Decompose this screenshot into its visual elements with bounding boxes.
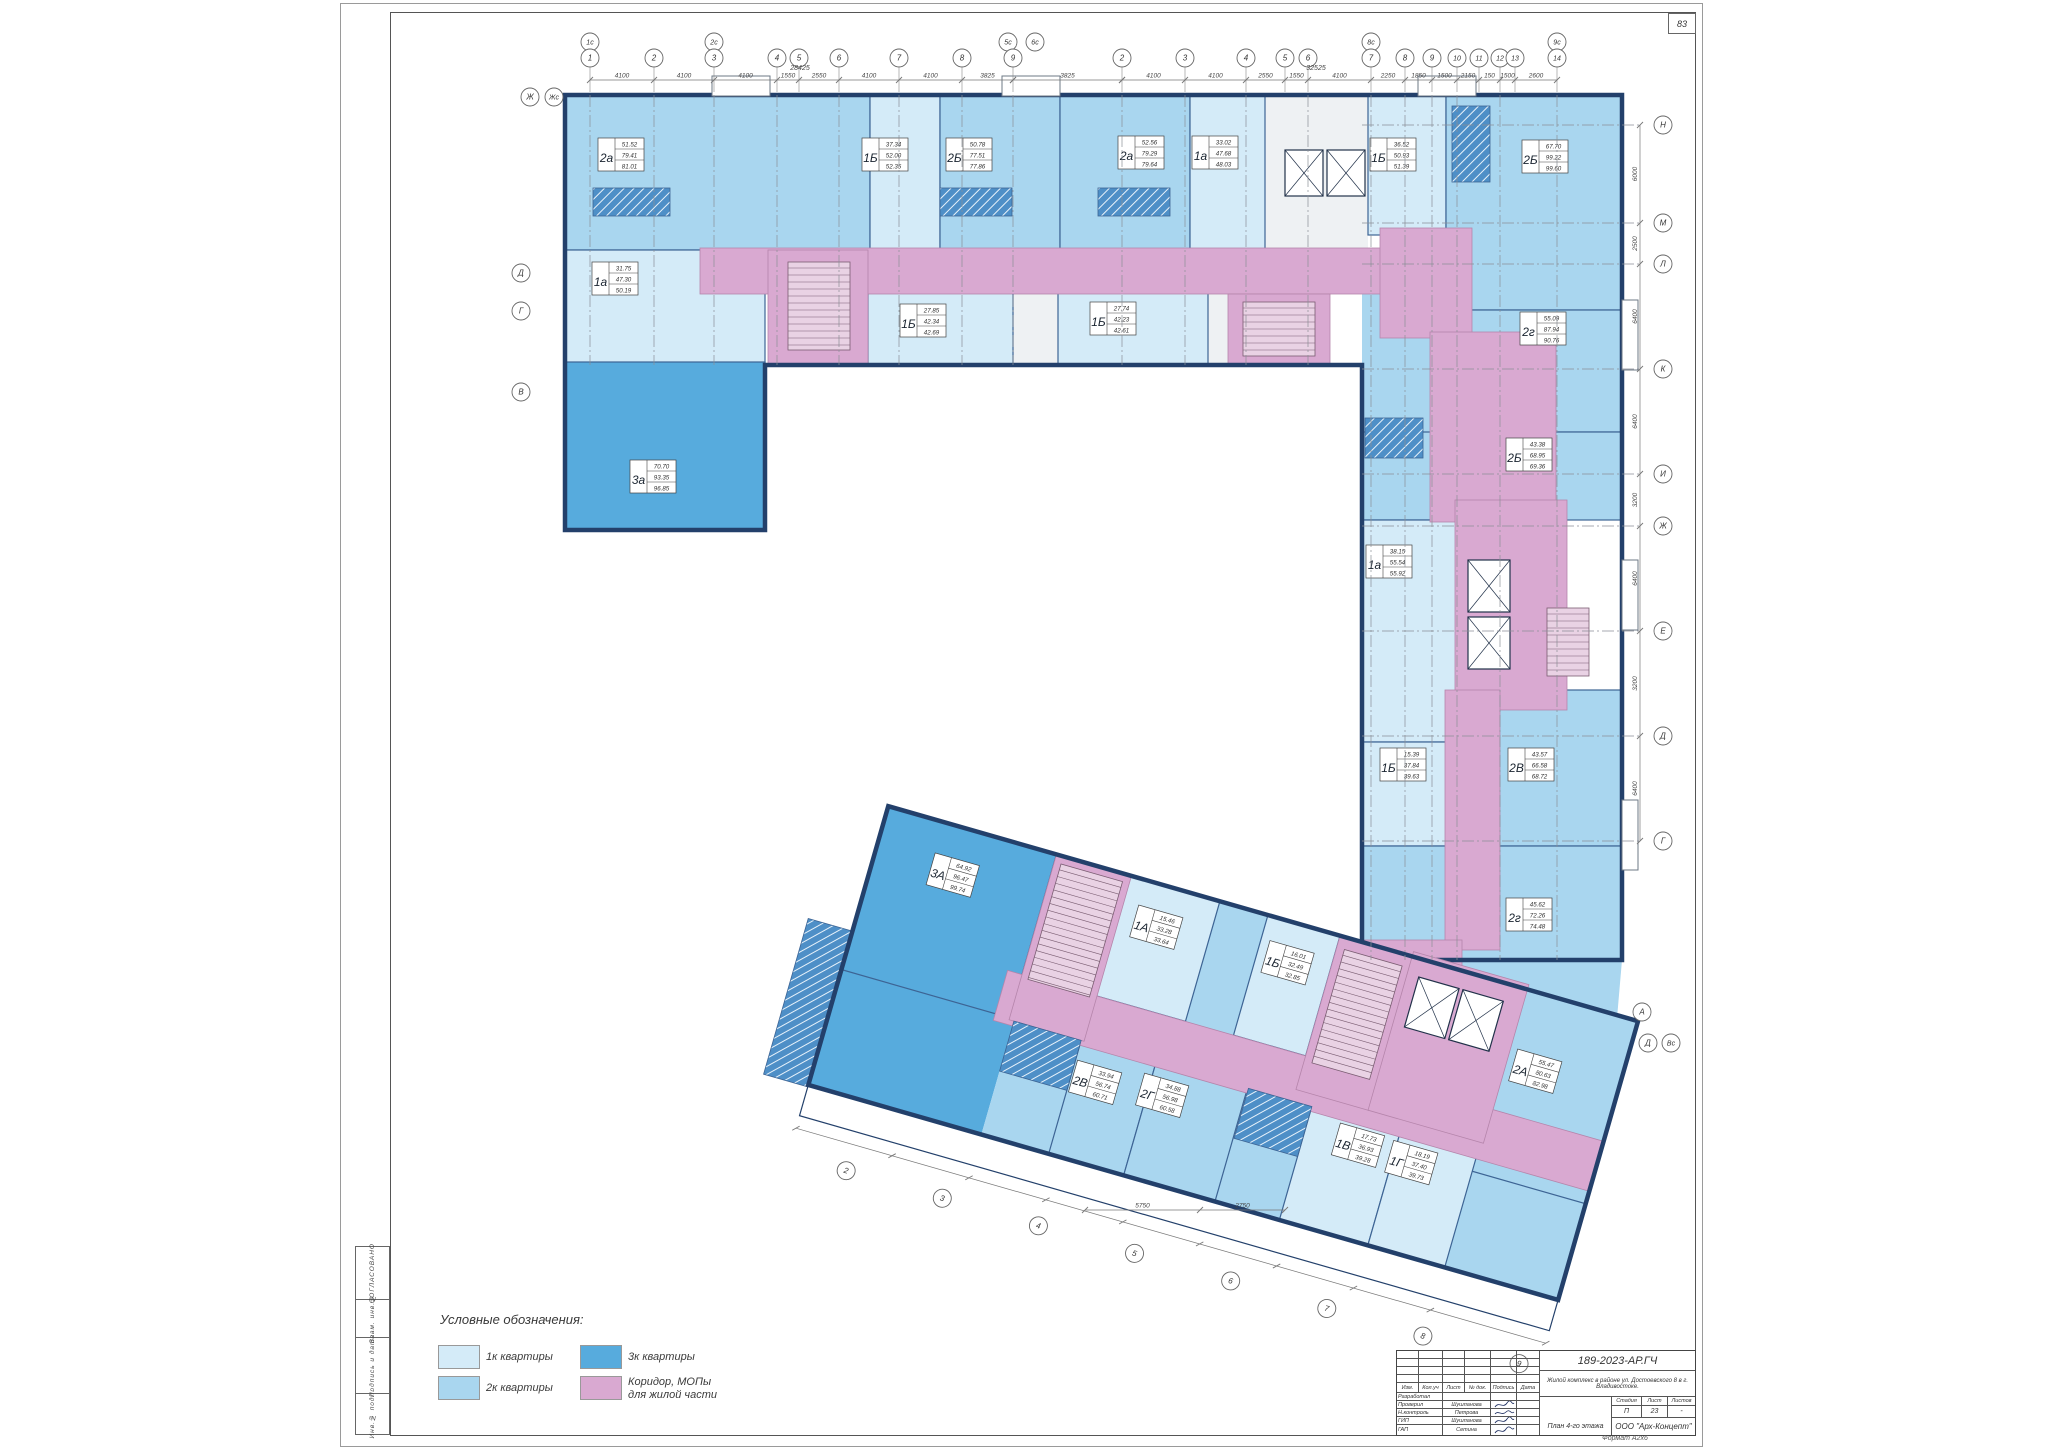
svg-text:47.68: 47.68 bbox=[1216, 150, 1232, 157]
grid-bubble-9с: 9с bbox=[1548, 33, 1566, 51]
tb-col-izm: Изм. bbox=[1397, 1383, 1419, 1393]
dim-value: 6000 bbox=[1632, 166, 1639, 181]
tb-col-koluch: Кол.уч bbox=[1419, 1383, 1443, 1393]
svg-text:15.39: 15.39 bbox=[1404, 751, 1420, 758]
grid-bubble-11: 11 bbox=[1470, 49, 1488, 67]
tb-company: ООО "Арх-Концепт" bbox=[1612, 1418, 1695, 1435]
grid-bubble-2: 2 bbox=[645, 49, 663, 67]
svg-text:Д: Д bbox=[517, 269, 524, 278]
dim-tick bbox=[792, 1124, 799, 1131]
grid-bubble-Ж: Ж bbox=[521, 88, 539, 106]
apartment-label-2Б: 2Б50.7877.5177.86 bbox=[946, 138, 992, 171]
grid-bubble-Д: Д bbox=[512, 264, 530, 282]
grid-bubble-М: М bbox=[1654, 214, 1672, 232]
grid-bubble-Г: Г bbox=[1654, 832, 1672, 850]
grid-bubble-2с: 2с bbox=[705, 33, 723, 51]
dim-value: 2600 bbox=[1528, 73, 1544, 80]
svg-text:1а: 1а bbox=[1194, 149, 1208, 163]
svg-text:68.72: 68.72 bbox=[1532, 773, 1548, 780]
svg-text:11: 11 bbox=[1475, 56, 1482, 63]
svg-text:72.26: 72.26 bbox=[1530, 912, 1546, 919]
svg-text:В: В bbox=[518, 388, 524, 397]
grid-bubble-2: 2 bbox=[1113, 49, 1131, 67]
grid-bubble-2: 2 bbox=[835, 1160, 857, 1182]
grid-bubble-Ж: Ж bbox=[1654, 517, 1672, 535]
tb-doc-number: 189-2023-АР.ГЧ bbox=[1540, 1351, 1695, 1371]
grid-bubble-Жс: Жс bbox=[545, 88, 563, 106]
svg-text:1: 1 bbox=[588, 54, 592, 63]
svg-text:1а: 1а bbox=[594, 275, 608, 289]
dim-value: 1550 bbox=[781, 73, 796, 80]
corridor bbox=[1445, 690, 1500, 950]
grid-bubble-7: 7 bbox=[1362, 49, 1380, 67]
tb-signature-4 bbox=[1491, 1425, 1517, 1435]
tb-sheets-label: Листов bbox=[1668, 1397, 1695, 1406]
svg-text:Г: Г bbox=[1661, 837, 1666, 846]
svg-text:Е: Е bbox=[1660, 627, 1666, 636]
svg-text:2: 2 bbox=[1119, 54, 1125, 63]
svg-text:79.64: 79.64 bbox=[1142, 161, 1158, 168]
dim-value: 1550 bbox=[1289, 73, 1304, 80]
dim-tick bbox=[1350, 1284, 1357, 1291]
svg-text:10: 10 bbox=[1453, 56, 1461, 63]
svg-text:2В: 2В bbox=[1508, 761, 1524, 775]
svg-text:55.54: 55.54 bbox=[1390, 559, 1406, 566]
svg-text:Г: Г bbox=[519, 307, 524, 316]
grid-bubble-3: 3 bbox=[705, 49, 723, 67]
grid-bubble-14: 14 bbox=[1548, 49, 1566, 67]
balcony bbox=[1622, 560, 1638, 630]
legend-label-1k: 1к квартиры bbox=[486, 1351, 553, 1364]
legend-label-2k: 2к квартиры bbox=[486, 1382, 553, 1395]
svg-text:12: 12 bbox=[1496, 56, 1504, 63]
floor-plan: 2а51.5279.4181.011Б37.3452.0052.352Б50.7… bbox=[0, 0, 2048, 1448]
tb-project: Жилой комплекс в районе ул. Достоевского… bbox=[1540, 1371, 1695, 1397]
svg-text:1Б: 1Б bbox=[863, 151, 878, 165]
grid-bubble-1с: 1с bbox=[581, 33, 599, 51]
svg-text:55.92: 55.92 bbox=[1390, 570, 1406, 577]
svg-text:81.01: 81.01 bbox=[622, 163, 637, 170]
apartment-2а bbox=[565, 95, 870, 250]
grid-bubble-7: 7 bbox=[1316, 1297, 1338, 1319]
hatched-area bbox=[940, 188, 1012, 216]
svg-text:27.74: 27.74 bbox=[1113, 305, 1130, 312]
svg-text:38.15: 38.15 bbox=[1390, 548, 1406, 555]
svg-text:52.35: 52.35 bbox=[886, 163, 902, 170]
svg-text:77.51: 77.51 bbox=[970, 152, 985, 159]
hatched-area bbox=[593, 188, 670, 216]
svg-text:6: 6 bbox=[1306, 54, 1311, 63]
area-fill bbox=[1013, 292, 1058, 364]
svg-text:90.76: 90.76 bbox=[1544, 337, 1560, 344]
svg-text:6: 6 bbox=[837, 54, 842, 63]
svg-text:1а: 1а bbox=[1368, 558, 1382, 572]
svg-text:50.93: 50.93 bbox=[1394, 152, 1410, 159]
apartment-2а bbox=[1060, 95, 1190, 250]
svg-text:7: 7 bbox=[897, 54, 902, 63]
svg-text:69.36: 69.36 bbox=[1530, 463, 1546, 470]
tb-name-4: Сетина bbox=[1443, 1425, 1491, 1435]
dim-value: 4100 bbox=[615, 73, 630, 80]
dim-tick bbox=[1427, 1306, 1434, 1313]
dim-value: 2750 bbox=[1234, 1203, 1250, 1210]
svg-text:2Б: 2Б bbox=[1506, 451, 1522, 465]
tb-signature-2 bbox=[1491, 1409, 1517, 1417]
grid-bubble-Е: Е bbox=[1654, 622, 1672, 640]
grid-bubble-3: 3 bbox=[1176, 49, 1194, 67]
dim-value: 4100 bbox=[1146, 73, 1161, 80]
svg-text:7: 7 bbox=[1369, 54, 1374, 63]
svg-text:36.52: 36.52 bbox=[1394, 141, 1410, 148]
svg-text:9: 9 bbox=[1430, 54, 1435, 63]
grid-bubble-8: 8 bbox=[1412, 1325, 1434, 1347]
apartment-2Б bbox=[940, 95, 1060, 250]
svg-text:2Б: 2Б bbox=[946, 151, 962, 165]
dim-tick bbox=[1196, 1240, 1203, 1247]
dim-value: 5750 bbox=[1135, 1203, 1150, 1210]
corridor bbox=[1380, 228, 1472, 338]
svg-text:93.35: 93.35 bbox=[654, 474, 670, 481]
tb-name-0 bbox=[1443, 1393, 1491, 1401]
svg-text:5: 5 bbox=[1283, 54, 1288, 63]
svg-text:1Б: 1Б bbox=[1091, 315, 1106, 329]
dim-tick bbox=[965, 1174, 972, 1181]
title-block: Изм. Кол.уч Лист № док. Подпись Дата Раз… bbox=[1396, 1350, 1696, 1436]
svg-text:2Б: 2Б bbox=[1522, 153, 1538, 167]
svg-text:66.58: 66.58 bbox=[1532, 762, 1548, 769]
svg-text:2а: 2а bbox=[599, 151, 614, 165]
grid-bubble-А: А bbox=[1633, 1003, 1651, 1021]
dim-value: 3825 bbox=[980, 73, 995, 80]
svg-text:9: 9 bbox=[1011, 54, 1016, 63]
tb-col-podpis: Подпись bbox=[1491, 1383, 1517, 1393]
tb-role-3: ГИП bbox=[1397, 1417, 1443, 1425]
tb-name-1: Шушпанова bbox=[1443, 1401, 1491, 1409]
tb-col-list: Лист bbox=[1443, 1383, 1465, 1393]
apartment-label-2а: 2а51.5279.4181.01 bbox=[598, 138, 644, 171]
format-note: Формат А2х6 bbox=[1560, 1435, 1690, 1442]
svg-text:Вс: Вс bbox=[1667, 1041, 1676, 1048]
grid-bubble-8: 8 bbox=[953, 49, 971, 67]
svg-text:74.48: 74.48 bbox=[1530, 923, 1546, 930]
svg-text:6с: 6с bbox=[1031, 40, 1039, 47]
apartment-label-2В: 2В43.5766.5868.72 bbox=[1508, 748, 1554, 781]
svg-text:31.75: 31.75 bbox=[616, 265, 632, 272]
svg-text:43.38: 43.38 bbox=[1530, 441, 1546, 448]
svg-text:55.09: 55.09 bbox=[1544, 315, 1560, 322]
grid-bubble-6: 6 bbox=[1220, 1270, 1242, 1292]
tb-drawing-title: План 4-го этажа bbox=[1540, 1397, 1612, 1435]
grid-bubble-5с: 5с bbox=[999, 33, 1017, 51]
svg-text:50.78: 50.78 bbox=[970, 141, 986, 148]
hatched-area bbox=[1365, 418, 1423, 458]
grid-bubble-5: 5 bbox=[1276, 49, 1294, 67]
tb-stage-label: Стадия bbox=[1612, 1397, 1642, 1406]
svg-text:37.84: 37.84 bbox=[1404, 762, 1420, 769]
dim-value: 6400 bbox=[1632, 571, 1639, 586]
svg-text:27.85: 27.85 bbox=[923, 307, 940, 314]
dim-value: 4100 bbox=[923, 73, 938, 80]
dim-value: 2150 bbox=[1460, 73, 1476, 80]
grid-bubble-5: 5 bbox=[1123, 1242, 1145, 1264]
svg-text:52.56: 52.56 bbox=[1142, 139, 1158, 146]
dim-value: 150 bbox=[1484, 73, 1495, 80]
svg-text:А: А bbox=[1638, 1008, 1644, 1017]
apartment-1а bbox=[1190, 95, 1265, 250]
legend-swatch-1k bbox=[438, 1345, 480, 1369]
legend-title: Условные обозначения: bbox=[440, 1312, 584, 1327]
svg-text:1с: 1с bbox=[586, 40, 594, 47]
svg-text:14: 14 bbox=[1553, 56, 1561, 63]
svg-text:Ж: Ж bbox=[1658, 522, 1667, 531]
grid-bubble-1: 1 bbox=[581, 49, 599, 67]
svg-text:1Б: 1Б bbox=[1371, 151, 1386, 165]
grid-bubble-Л: Л bbox=[1654, 255, 1672, 273]
svg-text:8: 8 bbox=[960, 54, 965, 63]
apartment-label-1Б: 1Б15.3937.8439.63 bbox=[1380, 748, 1426, 781]
svg-text:4: 4 bbox=[775, 54, 780, 63]
grid-bubble-4: 4 bbox=[768, 49, 786, 67]
svg-text:8: 8 bbox=[1403, 54, 1408, 63]
svg-text:43.57: 43.57 bbox=[1532, 751, 1548, 758]
svg-text:2г: 2г bbox=[1507, 911, 1521, 925]
grid-bubble-4: 4 bbox=[1237, 49, 1255, 67]
dim-value: 2500 bbox=[1632, 236, 1639, 252]
apartment-label-2г: 2г45.6272.2674.48 bbox=[1506, 898, 1552, 931]
grid-bubble-Н: Н bbox=[1654, 116, 1672, 134]
dim-value: 4100 bbox=[677, 73, 692, 80]
balcony bbox=[1002, 76, 1060, 96]
tb-role-0: Разработал bbox=[1397, 1393, 1443, 1401]
svg-text:Ж: Ж bbox=[525, 93, 534, 102]
dim-value: 3200 bbox=[1632, 676, 1639, 691]
grid-bubble-6с: 6с bbox=[1026, 33, 1044, 51]
legend-swatch-3k bbox=[580, 1345, 622, 1369]
tb-signature-1 bbox=[1491, 1401, 1517, 1409]
grid-bubble-Д: Д bbox=[1654, 727, 1672, 745]
svg-text:99.60: 99.60 bbox=[1546, 165, 1562, 172]
legend-swatch-2k bbox=[438, 1376, 480, 1400]
svg-text:77.86: 77.86 bbox=[970, 163, 986, 170]
apartment-label-1Б: 1Б27.7442.2342.61 bbox=[1090, 302, 1136, 335]
apartment-label-2г: 2г55.0987.9490.76 bbox=[1520, 312, 1566, 345]
dim-value: 2250 bbox=[1380, 73, 1396, 80]
svg-text:70.70: 70.70 bbox=[654, 463, 670, 470]
svg-text:67.70: 67.70 bbox=[1546, 143, 1562, 150]
grid-bubble-8: 8 bbox=[1396, 49, 1414, 67]
svg-text:99.22: 99.22 bbox=[1546, 154, 1562, 161]
apartment-label-1а: 1а31.7547.3050.19 bbox=[592, 262, 638, 295]
svg-text:Л: Л bbox=[1659, 260, 1666, 269]
dim-value: 6400 bbox=[1632, 781, 1639, 796]
svg-text:48.03: 48.03 bbox=[1216, 161, 1232, 168]
grid-bubble-Д: Д bbox=[1639, 1034, 1657, 1052]
tb-role-4: ГАП bbox=[1397, 1425, 1443, 1435]
dim-value: 1850 bbox=[1411, 73, 1426, 80]
grid-bubble-4: 4 bbox=[1027, 1215, 1049, 1237]
svg-text:79.41: 79.41 bbox=[622, 152, 637, 159]
svg-text:52.00: 52.00 bbox=[886, 152, 902, 159]
apartment-label-1Б: 1Б27.8542.3442.69 bbox=[900, 304, 946, 337]
svg-text:2с: 2с bbox=[709, 40, 718, 47]
dim-value: 2550 bbox=[811, 73, 827, 80]
svg-text:Д: Д bbox=[1644, 1039, 1651, 1048]
tb-sheets-value: - bbox=[1668, 1406, 1695, 1418]
dim-value: 3200 bbox=[1632, 492, 1639, 507]
dim-value: 6400 bbox=[1632, 414, 1639, 429]
svg-text:3: 3 bbox=[712, 54, 717, 63]
apartment-label-3а: 3а70.7093.3596.85 bbox=[630, 460, 676, 493]
grid-bubble-7: 7 bbox=[890, 49, 908, 67]
grid-bubble-10: 10 bbox=[1448, 49, 1466, 67]
tb-name-2: Петрова bbox=[1443, 1409, 1491, 1417]
svg-text:42.34: 42.34 bbox=[924, 318, 940, 325]
apartment-label-2Б: 2Б67.7099.2299.60 bbox=[1522, 140, 1568, 173]
tb-role-1: Проверил bbox=[1397, 1401, 1443, 1409]
svg-text:Н: Н bbox=[1660, 121, 1666, 130]
legend-label-corridor: Коридор, МОПы для жилой части bbox=[628, 1376, 717, 1401]
svg-text:37.34: 37.34 bbox=[886, 141, 902, 148]
dim-value: 3825 bbox=[1060, 73, 1075, 80]
svg-text:М: М bbox=[1660, 219, 1667, 228]
svg-text:2а: 2а bbox=[1119, 149, 1134, 163]
svg-text:42.61: 42.61 bbox=[1114, 327, 1129, 334]
legend-label-3k: 3к квартиры bbox=[628, 1351, 695, 1364]
svg-text:50.19: 50.19 bbox=[616, 287, 632, 294]
grid-bubble-8с: 8с bbox=[1362, 33, 1380, 51]
svg-text:Жс: Жс bbox=[548, 95, 559, 102]
tb-sheet-value: 23 bbox=[1642, 1406, 1668, 1418]
dim-tick bbox=[1273, 1262, 1280, 1269]
apartment-3а bbox=[565, 362, 765, 530]
apartment-label-2а: 2а52.5679.2979.64 bbox=[1118, 136, 1164, 169]
svg-text:39.63: 39.63 bbox=[1404, 773, 1420, 780]
svg-text:5: 5 bbox=[797, 54, 802, 63]
svg-text:13: 13 bbox=[1511, 56, 1519, 63]
svg-text:87.94: 87.94 bbox=[1544, 326, 1560, 333]
dim-value: 1500 bbox=[1500, 73, 1515, 80]
grid-bubble-13: 13 bbox=[1506, 49, 1524, 67]
grid-bubble-9: 9 bbox=[1423, 49, 1441, 67]
dim-value: 4100 bbox=[1208, 73, 1223, 80]
tb-stage-value: П bbox=[1612, 1406, 1642, 1418]
svg-text:8с: 8с bbox=[1367, 40, 1375, 47]
dim-tick bbox=[1542, 1339, 1549, 1346]
hatched-area bbox=[1098, 188, 1170, 216]
grid-bubble-И: И bbox=[1654, 465, 1672, 483]
svg-text:2: 2 bbox=[651, 54, 657, 63]
svg-text:47.30: 47.30 bbox=[616, 276, 632, 283]
tb-sheet-label: Лист bbox=[1642, 1397, 1668, 1406]
grid-bubble-К: К bbox=[1654, 360, 1672, 378]
svg-text:Д: Д bbox=[1659, 732, 1666, 741]
svg-text:68.95: 68.95 bbox=[1530, 452, 1546, 459]
svg-text:51.39: 51.39 bbox=[1394, 163, 1410, 170]
hatched-area bbox=[1452, 106, 1490, 182]
tb-col-data: Дата bbox=[1517, 1383, 1540, 1393]
dim-overall: 32525 bbox=[1306, 65, 1326, 72]
svg-text:42.69: 42.69 bbox=[924, 329, 940, 336]
dim-value: 4100 bbox=[738, 73, 753, 80]
dim-tick bbox=[888, 1152, 895, 1159]
svg-text:1Б: 1Б bbox=[901, 317, 916, 331]
svg-text:45.62: 45.62 bbox=[1530, 901, 1546, 908]
corridor bbox=[1430, 332, 1556, 522]
dim-tick bbox=[1042, 1196, 1049, 1203]
svg-text:33.02: 33.02 bbox=[1216, 139, 1232, 146]
grid-bubble-6: 6 bbox=[830, 49, 848, 67]
dim-value: 1500 bbox=[1437, 73, 1452, 80]
svg-text:9с: 9с bbox=[1553, 40, 1561, 47]
tb-name-3: Шушпанова bbox=[1443, 1417, 1491, 1425]
dim-value: 2550 bbox=[1257, 73, 1273, 80]
svg-text:4: 4 bbox=[1244, 54, 1249, 63]
apartment-label-2Б: 2Б43.3868.9569.36 bbox=[1506, 438, 1552, 471]
grid-bubble-9: 9 bbox=[1004, 49, 1022, 67]
grid-bubble-3: 3 bbox=[931, 1187, 953, 1209]
svg-text:5с: 5с bbox=[1004, 40, 1012, 47]
legend-swatch-corridor bbox=[580, 1376, 622, 1400]
svg-text:96.85: 96.85 bbox=[654, 485, 670, 492]
svg-text:1Б: 1Б bbox=[1381, 761, 1396, 775]
svg-text:79.29: 79.29 bbox=[1142, 150, 1158, 157]
grid-bubble-Вс: Вс bbox=[1662, 1034, 1680, 1052]
area-fill bbox=[1208, 292, 1230, 364]
tb-col-ndok: № док. bbox=[1465, 1383, 1491, 1393]
svg-text:3: 3 bbox=[1183, 54, 1188, 63]
balcony bbox=[1622, 800, 1638, 870]
apartment-label-1Б: 1Б36.5250.9351.39 bbox=[1370, 138, 1416, 171]
apartment-1Б bbox=[870, 95, 940, 250]
grid-bubble-Г: Г bbox=[512, 302, 530, 320]
svg-text:2г: 2г bbox=[1521, 325, 1535, 339]
apartment-label-1Б: 1Б37.3452.0052.35 bbox=[862, 138, 908, 171]
svg-text:И: И bbox=[1660, 470, 1666, 479]
svg-text:51.52: 51.52 bbox=[622, 141, 638, 148]
dim-overall: 28425 bbox=[789, 65, 810, 72]
tb-signature-3 bbox=[1491, 1417, 1517, 1425]
grid-bubble-В: В bbox=[512, 383, 530, 401]
svg-text:3а: 3а bbox=[632, 473, 646, 487]
dim-value: 6400 bbox=[1632, 309, 1639, 324]
dim-value: 4100 bbox=[862, 73, 877, 80]
dim-tick bbox=[1119, 1218, 1126, 1225]
tb-role-2: Н.контроль bbox=[1397, 1409, 1443, 1417]
dim-value: 4100 bbox=[1332, 73, 1347, 80]
apartment-label-1а: 1а33.0247.6848.03 bbox=[1192, 136, 1238, 169]
